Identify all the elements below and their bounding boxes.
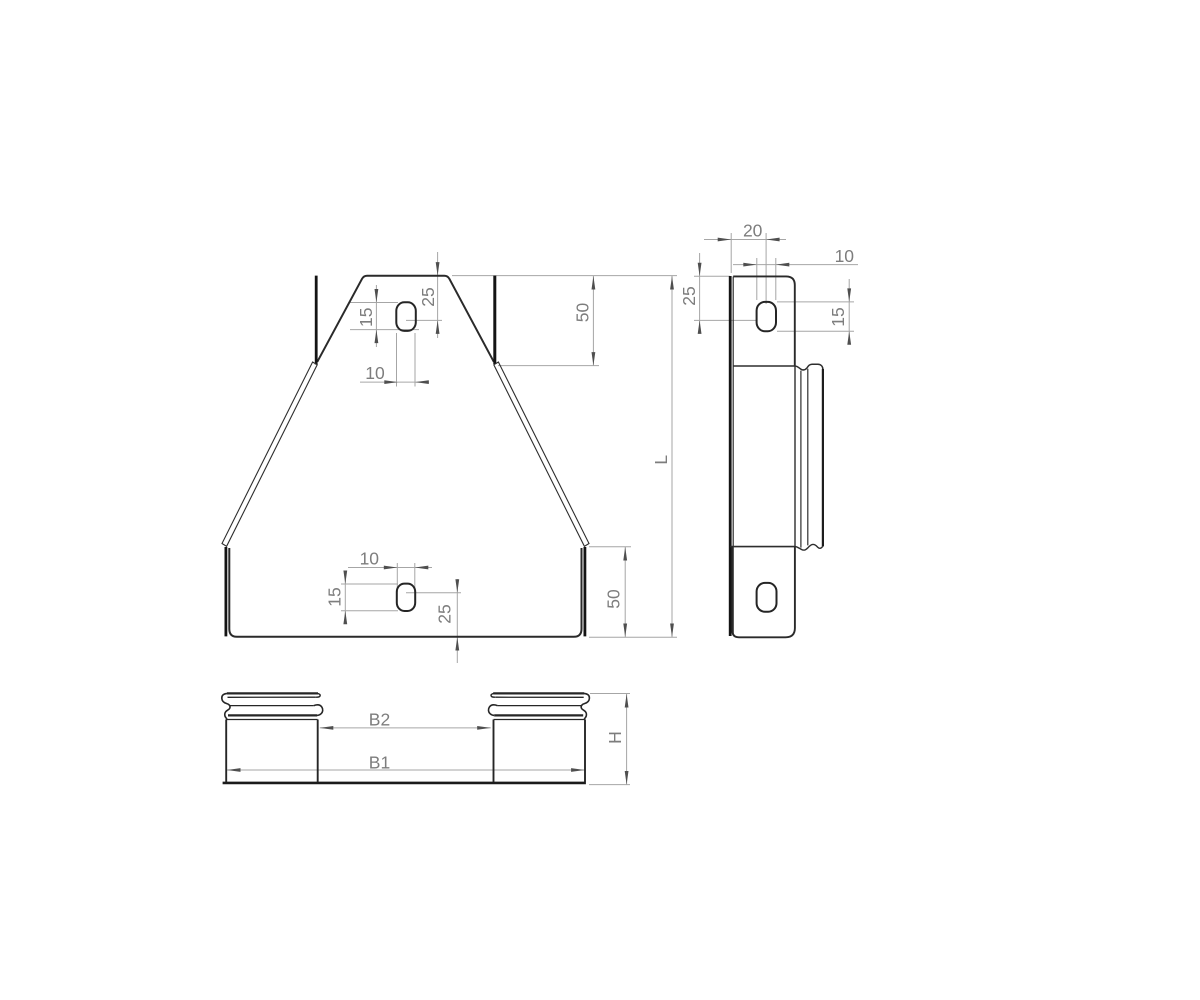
svg-text:10: 10 bbox=[835, 246, 855, 266]
svg-text:20: 20 bbox=[743, 221, 763, 241]
svg-text:10: 10 bbox=[365, 363, 385, 383]
svg-text:L: L bbox=[651, 455, 671, 465]
svg-text:10: 10 bbox=[360, 549, 380, 569]
svg-text:15: 15 bbox=[356, 308, 376, 327]
svg-text:50: 50 bbox=[573, 303, 593, 323]
svg-text:15: 15 bbox=[828, 307, 848, 326]
svg-text:50: 50 bbox=[604, 589, 624, 609]
svg-text:B1: B1 bbox=[369, 753, 390, 773]
svg-text:25: 25 bbox=[435, 604, 455, 623]
svg-text:H: H bbox=[605, 731, 625, 744]
svg-text:25: 25 bbox=[418, 287, 438, 306]
svg-text:B2: B2 bbox=[369, 710, 390, 730]
svg-text:25: 25 bbox=[679, 286, 699, 305]
svg-text:15: 15 bbox=[325, 587, 345, 606]
